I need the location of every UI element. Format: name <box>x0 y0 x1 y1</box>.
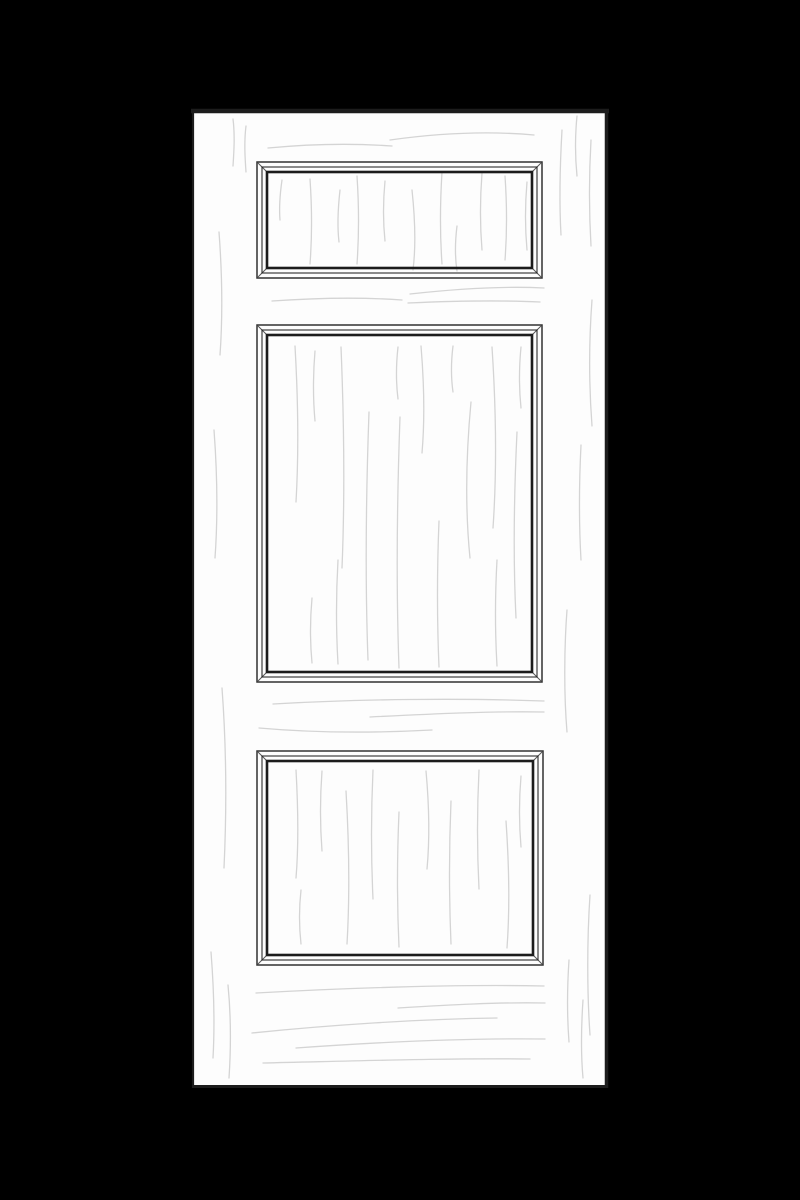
door-slab <box>193 111 607 1087</box>
stage <box>0 0 800 1200</box>
door-illustration <box>0 0 800 1200</box>
